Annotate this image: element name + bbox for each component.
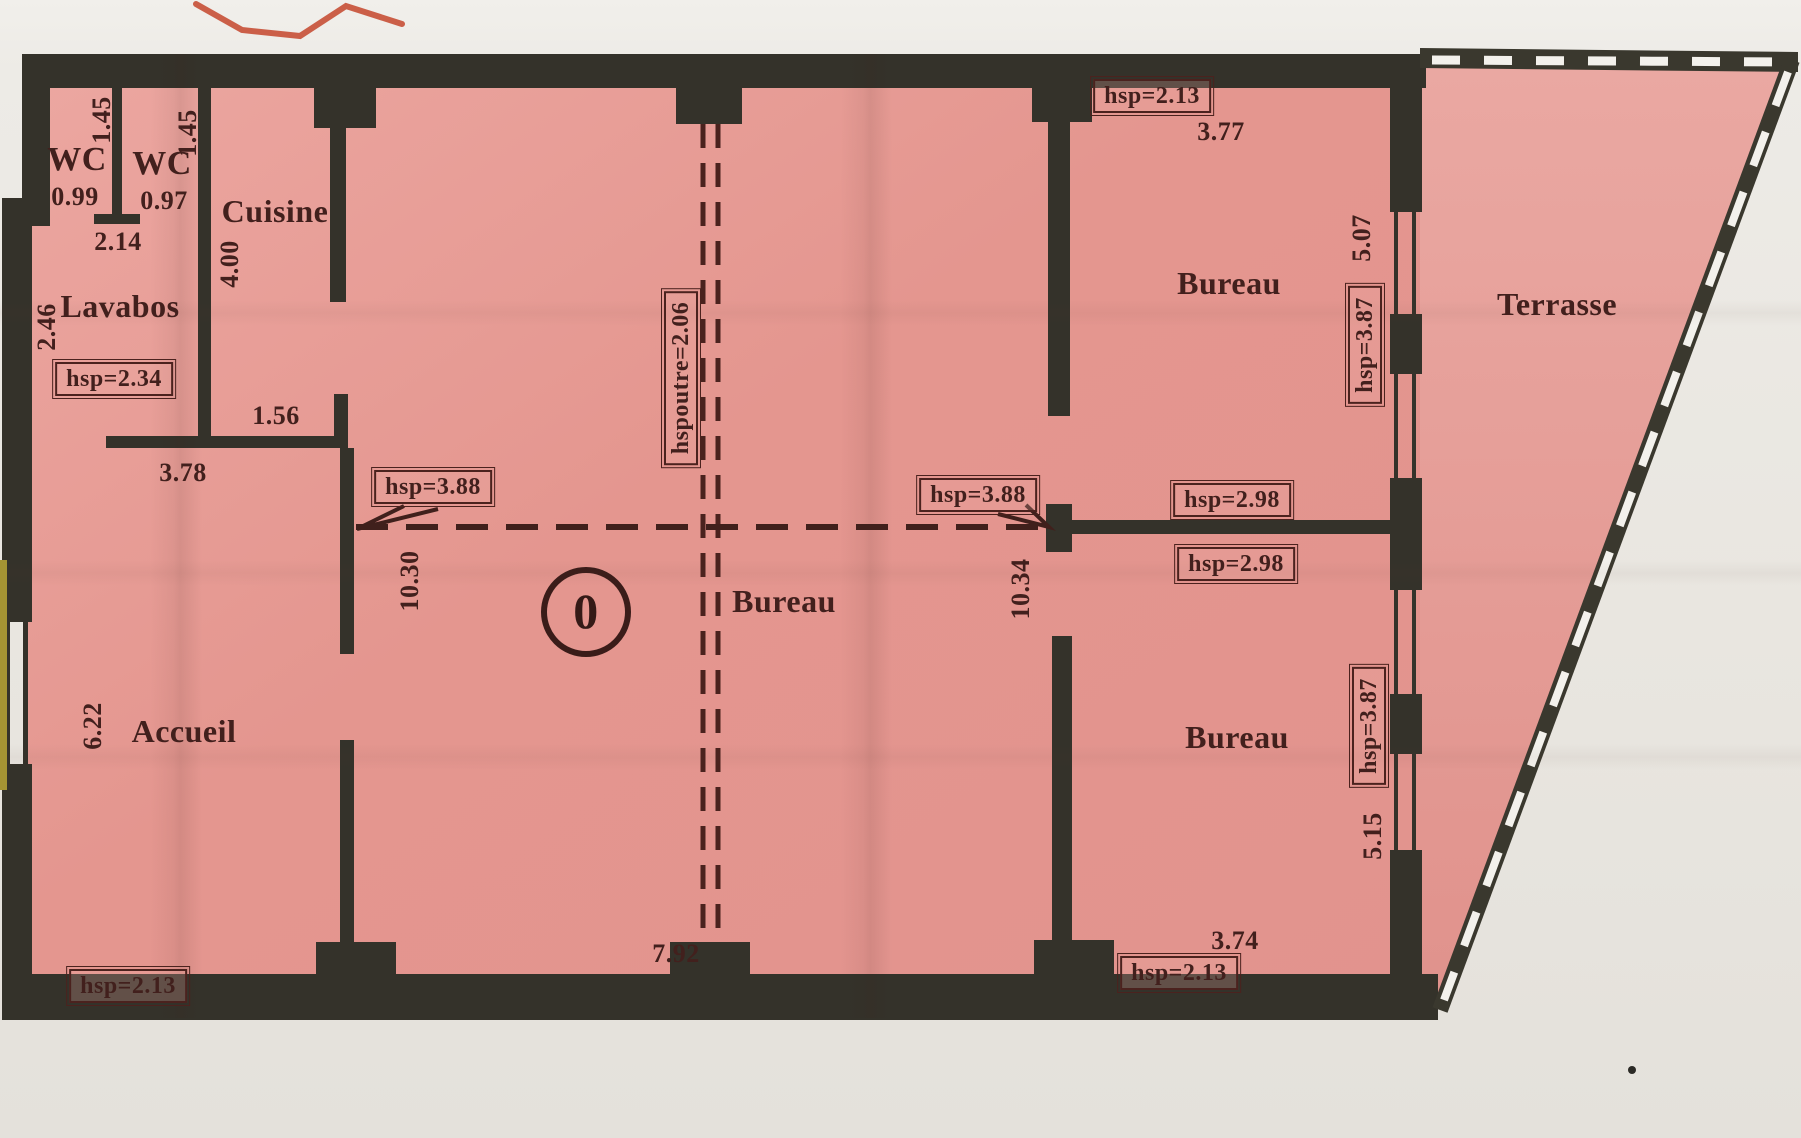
hsp-box-open-space-left: hsp=3.88 [374,470,492,504]
hsp-box-open-space-right: hsp=3.88 [919,478,1037,512]
window-right-line [1394,374,1398,478]
wall-bureau-divider-upper [1048,88,1070,416]
dim-accueil-width: 6.22 [80,702,106,750]
room-label-bureau-bottom-right: Bureau [1185,721,1289,753]
dim-open-space-bottom-width: 7.92 [652,941,700,967]
wall-top [22,54,1426,88]
window-right-line [1412,590,1416,694]
dim-wall-stub: 1.56 [252,403,300,429]
room-label-bureau-top-right: Bureau [1177,267,1281,299]
wall-accueil-right-upper [340,448,354,654]
wall-right-pillar [1390,694,1422,754]
room-label-lavabos: Lavabos [60,290,179,322]
wall-right-segment [1390,54,1422,212]
dim-cuisine-depth: 4.00 [217,240,243,288]
wall-bureau-divider-lower [1052,636,1072,946]
hsp-box-lavabos: hsp=2.34 [55,362,173,396]
dim-window-top-width: 5.07 [1349,214,1375,262]
window-left-line [23,618,28,768]
dim-opening-width: 3.78 [159,460,207,486]
dim-open-space-right-depth: 10.34 [1008,559,1034,620]
dim-wc-right-depth: 1.45 [175,109,201,157]
red-pen-mark [196,4,402,36]
pillar-top-beam [676,88,742,124]
ink-dot [1628,1066,1636,1074]
level-marker-number: 0 [573,586,599,636]
hsp-box-wall-below: hsp=2.98 [1177,547,1295,581]
floor-plan-drawing [0,0,1801,1138]
window-right-line [1394,754,1398,850]
hsp-box-bureau-top: hsp=2.13 [1093,79,1211,113]
room-label-cuisine: Cuisine [222,195,329,227]
window-right-line [1412,374,1416,478]
dim-bureau-top-width: 3.77 [1197,119,1245,145]
hsp-box-window-bottom: hsp=3.87 [1352,667,1386,785]
hsp-box-wall-above: hsp=2.98 [1173,483,1291,517]
room-label-accueil: Accueil [132,715,237,747]
hsp-box-beam: hspoutre=2.06 [664,291,698,465]
wall-right-pillar [1390,314,1422,374]
pillar-bottom [316,942,396,980]
dim-wc-right-width: 0.97 [140,188,188,214]
window-right-line [1394,212,1398,314]
room-label-wc-left: WC [47,143,107,177]
window-right-line [1394,590,1398,694]
wall-bureau-horizontal [1060,520,1392,534]
dim-wc-left-depth: 1.45 [89,96,115,144]
wall-lavabos-south [106,436,346,448]
dim-wc-left-width: 0.99 [51,184,99,210]
pillar-top [314,88,376,128]
wall-wc-divider-foot [94,214,140,224]
dim-lavabos-depth: 2.46 [34,303,60,351]
dim-open-space-left-depth: 10.30 [397,551,423,612]
hsp-box-window-top: hsp=3.87 [1348,286,1382,404]
dim-wc-block-width: 2.14 [94,229,142,255]
dim-bureau-bottom-width: 3.74 [1211,928,1259,954]
wall-left-mid [2,198,32,622]
room-label-bureau-center: Bureau [732,585,836,617]
hsp-box-accueil: hsp=2.13 [69,969,187,1003]
floor-plan-scan: WC WC Cuisine Lavabos Accueil Bureau Bur… [0,0,1801,1138]
hsp-box-bureau-bottom: hsp=2.13 [1120,956,1238,990]
window-right-line [1412,212,1416,314]
pillar-bottom [1034,940,1114,980]
window-left-line [5,618,10,768]
wall-right-segment [1390,850,1422,1016]
window-right-line [1412,754,1416,850]
wall-right-pillar [1390,478,1422,590]
dim-window-bottom-width: 5.15 [1360,812,1386,860]
room-label-terrasse: Terrasse [1497,288,1617,320]
